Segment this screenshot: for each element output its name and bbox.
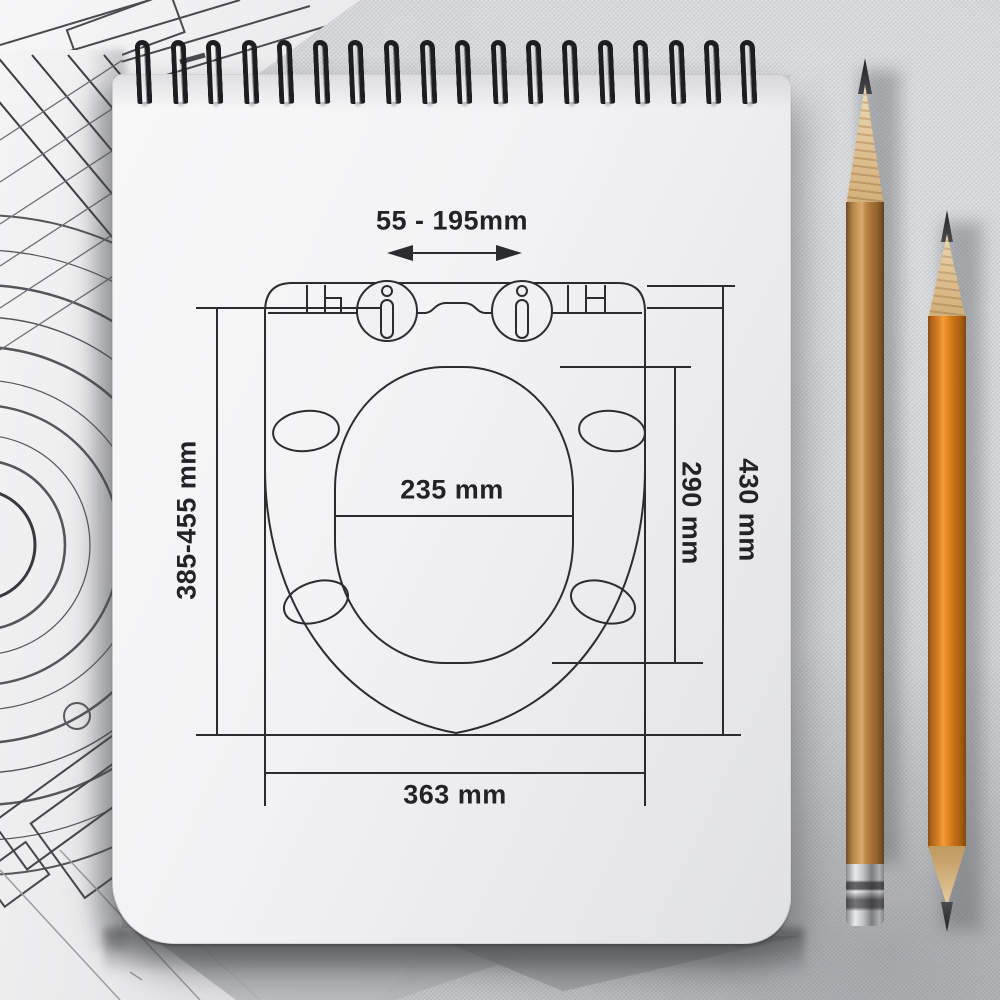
spiral-loop — [739, 40, 757, 105]
bumper — [271, 408, 341, 455]
right-bracket-notch — [568, 285, 605, 313]
overall-width-label: 363 mm — [403, 782, 507, 809]
dim-hinge-distance-arrow — [387, 245, 522, 261]
bumper — [577, 408, 647, 455]
spiral-loop — [490, 40, 508, 105]
spiral-loop — [348, 40, 366, 105]
wooden-pencil — [846, 58, 884, 868]
orange-pencil — [928, 210, 966, 932]
spiral-loop — [241, 40, 259, 105]
spiral-loop — [135, 40, 153, 105]
inner-width-label: 235 mm — [400, 477, 504, 504]
wooden-pencil-body — [846, 202, 884, 866]
spiral-loop — [384, 40, 402, 105]
spiral-loop — [562, 40, 580, 105]
wooden-pencil-ferrule — [846, 864, 884, 926]
spiral-loop — [455, 40, 473, 105]
dim-overall-width — [265, 310, 645, 806]
spiral-binding — [136, 40, 756, 110]
bumper — [565, 573, 640, 631]
hinge-distance-label: 55 - 195mm — [376, 208, 528, 235]
spiral-loop — [419, 40, 437, 105]
hinge-left — [357, 281, 417, 341]
spiral-loop — [526, 40, 544, 105]
spiral-loop — [633, 40, 651, 105]
orange-pencil-body — [928, 316, 966, 848]
hinge-right — [492, 281, 552, 341]
spiral-loop — [313, 40, 331, 105]
scene: 55 - 195mm 385-455 mm 235 mm 290 mm 430 … — [0, 0, 1000, 1000]
dim-mounting-range — [196, 308, 741, 735]
inner-depth-label: 290 mm — [678, 461, 705, 565]
spiral-loop — [668, 40, 686, 105]
overall-depth-label: 430 mm — [735, 458, 762, 562]
spiral-loop — [170, 40, 188, 105]
spiral-loop — [206, 40, 224, 105]
seat-outline — [265, 283, 645, 733]
spiral-loop — [704, 40, 722, 105]
spiral-loop — [597, 40, 615, 105]
mounting-range-label: 385-455 mm — [174, 440, 201, 600]
spiral-loop — [277, 40, 295, 105]
